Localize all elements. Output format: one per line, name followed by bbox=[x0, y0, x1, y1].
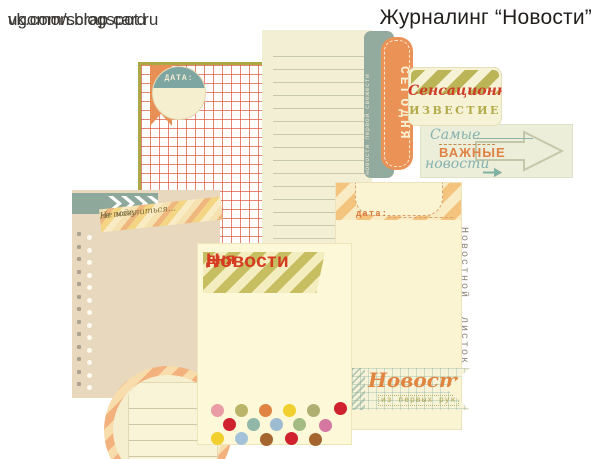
polka-dot bbox=[235, 432, 248, 445]
punch-hole bbox=[87, 335, 92, 340]
punch-hole bbox=[87, 310, 92, 315]
polka-dot bbox=[307, 404, 320, 417]
polka-dot bbox=[270, 418, 283, 431]
scrapbook-journaling-graphic: ugomon.blogspot.ru vk.com/scrap.card Жур… bbox=[0, 0, 600, 459]
vk-link: vk.com/scrap.card bbox=[8, 8, 146, 33]
punch-hole bbox=[77, 382, 81, 386]
punch-hole bbox=[77, 245, 81, 249]
important-news-card: Самые ВАЖНЫЕ новости bbox=[420, 124, 573, 178]
important-word1: Самые bbox=[430, 127, 480, 143]
date-label: дата: bbox=[356, 209, 388, 219]
punch-hole bbox=[77, 320, 81, 324]
polka-dot bbox=[293, 418, 306, 431]
sensation-caps-text: ИЗВЕСТИЕ bbox=[408, 104, 502, 117]
polka-dots bbox=[198, 244, 351, 444]
polka-dot bbox=[334, 402, 347, 415]
sheet-side-text-value: Новостной листок bbox=[458, 227, 469, 419]
date-tag: ДАТА: bbox=[152, 66, 206, 120]
flourish-line bbox=[473, 138, 533, 139]
punch-hole bbox=[77, 345, 81, 349]
sensation-card: Сенсационное ИЗВЕСТИЕ bbox=[408, 67, 502, 126]
punch-hole bbox=[77, 295, 81, 299]
polka-dot bbox=[211, 432, 224, 445]
punch-hole bbox=[87, 360, 92, 365]
punch-hole bbox=[77, 232, 81, 236]
punch-hole bbox=[77, 257, 81, 261]
date-tag-label: ДАТА: bbox=[153, 67, 205, 88]
sensation-script-text: Сенсационное bbox=[408, 83, 502, 99]
polka-dot bbox=[260, 433, 273, 446]
punch-hole bbox=[77, 357, 81, 361]
page-title: Журналинг “Новости” bbox=[379, 6, 592, 30]
polka-dot bbox=[259, 404, 272, 417]
polka-dot bbox=[211, 404, 224, 417]
polka-dot bbox=[235, 404, 248, 417]
polka-dot bbox=[223, 418, 236, 431]
punch-hole bbox=[87, 323, 92, 328]
punch-hole bbox=[87, 348, 92, 353]
polka-dot bbox=[319, 419, 332, 432]
punch-hole bbox=[87, 248, 92, 253]
hatch-strip bbox=[352, 368, 365, 410]
today-tab-border: СЕГОДНЯ bbox=[384, 40, 410, 167]
news-of-the-day-card: Новости дня bbox=[197, 243, 352, 445]
polka-dot bbox=[247, 418, 260, 431]
polka-dot bbox=[283, 404, 296, 417]
polka-dot bbox=[285, 432, 298, 445]
punch-hole bbox=[77, 307, 81, 311]
punch-hole bbox=[87, 235, 92, 240]
punch-hole bbox=[87, 285, 92, 290]
punch-hole bbox=[87, 298, 92, 303]
mini-arrow-icon bbox=[483, 168, 502, 177]
punch-hole bbox=[87, 385, 92, 390]
polka-dot bbox=[309, 433, 322, 446]
important-word3: новости bbox=[425, 156, 489, 172]
punch-hole bbox=[77, 270, 81, 274]
punch-hole bbox=[77, 370, 81, 374]
punch-hole bbox=[87, 260, 92, 265]
punch-hole bbox=[87, 373, 92, 378]
banner-subtitle: из первых рук bbox=[378, 395, 459, 406]
punch-hole bbox=[77, 282, 81, 286]
dashed-write-line bbox=[388, 217, 453, 218]
punch-hole bbox=[87, 273, 92, 278]
side-strip-text: новости первой свежести bbox=[364, 35, 371, 175]
punch-hole bbox=[77, 332, 81, 336]
